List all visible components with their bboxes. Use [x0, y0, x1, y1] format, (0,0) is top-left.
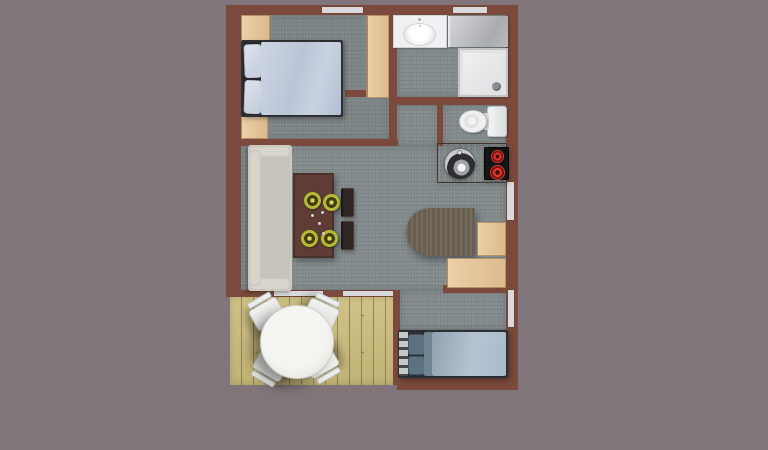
toilet-bowl-inner: [468, 117, 476, 125]
sofa: [248, 145, 292, 291]
window-top-right: [453, 7, 487, 13]
vanity-drain: [419, 25, 421, 27]
shower-drain: [492, 82, 501, 91]
window-right-lower: [508, 290, 514, 327]
dining-table: [293, 173, 334, 258]
vanity-faucet: [418, 18, 421, 21]
side-cabinet: [477, 222, 506, 256]
cutlery-4: [322, 232, 325, 235]
sofa-backrest: [249, 150, 261, 286]
low-cabinet: [447, 258, 506, 288]
vanity-counter: [393, 15, 447, 48]
single-bed-duvet: [432, 332, 506, 376]
kitchen-counter: [437, 143, 507, 183]
deck-round-table: [260, 305, 334, 379]
wall-bathroom-bottom: [397, 97, 506, 105]
cooktop-burner-large: [490, 165, 505, 180]
single-bed: [398, 330, 508, 378]
desk-rect-part: [430, 208, 475, 256]
single-bed-pillow-bottom: [408, 356, 425, 375]
window-right-upper: [507, 182, 514, 220]
toilet-tank: [487, 106, 507, 137]
place-setting-1: [304, 192, 321, 209]
wall-closet-stub: [345, 90, 368, 97]
bed-pillow-bottom: [243, 80, 262, 115]
wall-left: [226, 15, 241, 297]
window-top-left: [322, 7, 363, 13]
dining-chair-top: [341, 188, 354, 217]
sofa-cushion-3: [261, 238, 290, 278]
kitchen-faucet: [457, 150, 462, 155]
cooktop: [484, 147, 509, 180]
cutlery-1: [311, 214, 314, 217]
hallway-floor: [397, 105, 437, 146]
wardrobe-top-left: [241, 15, 270, 41]
cutlery-3: [318, 222, 321, 225]
toilet-bowl: [459, 110, 487, 133]
tall-wardrobe-right: [366, 15, 389, 98]
bed-pillow-top: [243, 44, 262, 79]
sofa-cushion-2: [261, 197, 290, 239]
double-bed: [241, 40, 343, 117]
shower-tray: [458, 48, 508, 97]
wall-wc-left: [437, 105, 443, 146]
dining-chair-bottom: [341, 221, 354, 250]
single-bed-pillow-top: [408, 334, 425, 355]
floor-plan-render: [0, 0, 768, 450]
place-setting-3: [301, 230, 318, 247]
bed-duvet: [261, 42, 341, 115]
bedroom2-carpet-floor: [400, 290, 506, 330]
cooktop-burner-small: [491, 150, 504, 163]
round-end-desk: [406, 208, 475, 256]
shower-glass-panel: [448, 16, 508, 47]
wall-bottom: [397, 378, 506, 390]
sofa-cushion-1: [261, 157, 290, 198]
cutlery-2: [321, 211, 324, 214]
single-bed-headboard: [399, 332, 408, 376]
deck-glass-door-right: [343, 291, 393, 296]
place-setting-2: [323, 194, 340, 211]
